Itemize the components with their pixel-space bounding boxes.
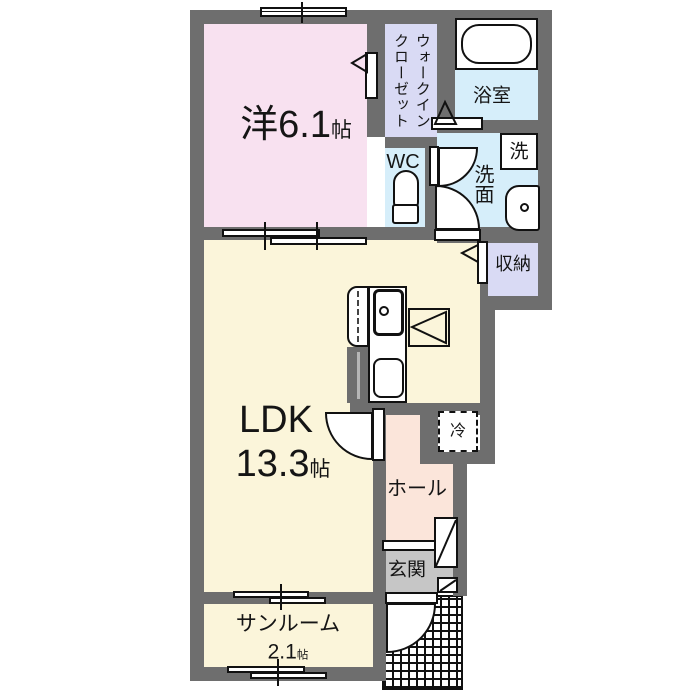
wall-closet-bath	[437, 10, 455, 133]
floor-plan: 洋6.1帖 ウォークイン クローゼット WC 浴室 洗面 洗 収納 LDK 13…	[0, 0, 700, 700]
walk-in-closet-label: ウォークイン クローゼット	[389, 33, 433, 129]
kitchen-stove-icon	[373, 358, 404, 398]
western-room-label: 洋6.1帖	[240, 106, 352, 144]
ldk-size-label: 13.3帖	[236, 445, 331, 483]
bathroom-label: 浴室	[473, 87, 511, 106]
wall-fridge-left	[420, 403, 438, 453]
slider-western-ldk-b	[270, 237, 367, 245]
window-western-top	[260, 7, 347, 17]
entrance-label: 玄関	[388, 561, 426, 580]
wall-right-upper	[538, 10, 552, 310]
washroom-label: 洗面	[472, 164, 492, 204]
ldk-size: 13.3	[236, 443, 310, 485]
hall-label: ホール	[387, 479, 447, 499]
cupboard-icon	[408, 308, 450, 347]
sunroom-size: 2.1	[268, 641, 297, 664]
shoe-cabinet-icon	[434, 517, 458, 568]
toilet-tank-icon	[392, 204, 419, 224]
door-bathroom	[431, 117, 483, 130]
slider-western-ldk-tick2	[316, 222, 318, 250]
wall-kitchen-stub-slit	[357, 352, 360, 399]
wall-left	[190, 10, 204, 681]
walk-in-closet-line1: ウォークイン	[411, 33, 433, 129]
bathtub-icon	[461, 24, 532, 64]
door-washroom	[434, 229, 481, 241]
window-sunroom-bottom-b	[250, 672, 327, 679]
ldk-label: LDK	[239, 401, 313, 439]
door-entrance	[385, 592, 438, 604]
entrance-counter-icon	[437, 577, 458, 593]
kitchen-counter-dashline	[357, 291, 359, 342]
sunroom-size-unit: 帖	[297, 650, 309, 662]
window-western-top-midline	[262, 11, 345, 12]
sunroom-size-label: 2.1帖	[268, 642, 309, 663]
wall-right-middle	[480, 296, 495, 464]
door-wc	[429, 146, 439, 186]
door-storage	[477, 241, 488, 284]
walk-in-closet-line2: クローゼット	[389, 33, 411, 129]
storage-label: 収納	[495, 255, 531, 273]
entrance-step	[382, 540, 438, 551]
door-hall	[372, 408, 385, 461]
washing-machine-label: 洗	[509, 143, 528, 162]
window-western-top-tick	[301, 2, 303, 23]
washroom-sink-faucet	[520, 203, 529, 212]
ldk-size-unit: 帖	[310, 458, 331, 481]
wc-label: WC	[386, 152, 419, 172]
western-room-unit: 帖	[331, 119, 352, 142]
porch-tile	[382, 595, 463, 690]
window-ldk-sunroom-b	[269, 597, 326, 604]
refrigerator-label: 冷	[450, 424, 466, 440]
western-room-size: 洋6.1	[240, 104, 331, 146]
door-western-closet	[365, 52, 378, 99]
slider-western-ldk-a	[222, 229, 320, 237]
slider-western-ldk-tick1	[264, 222, 266, 250]
kitchen-faucet	[379, 306, 389, 316]
sunroom-label: サンルーム	[236, 614, 340, 635]
window-ldk-sunroom-tick	[280, 584, 282, 610]
